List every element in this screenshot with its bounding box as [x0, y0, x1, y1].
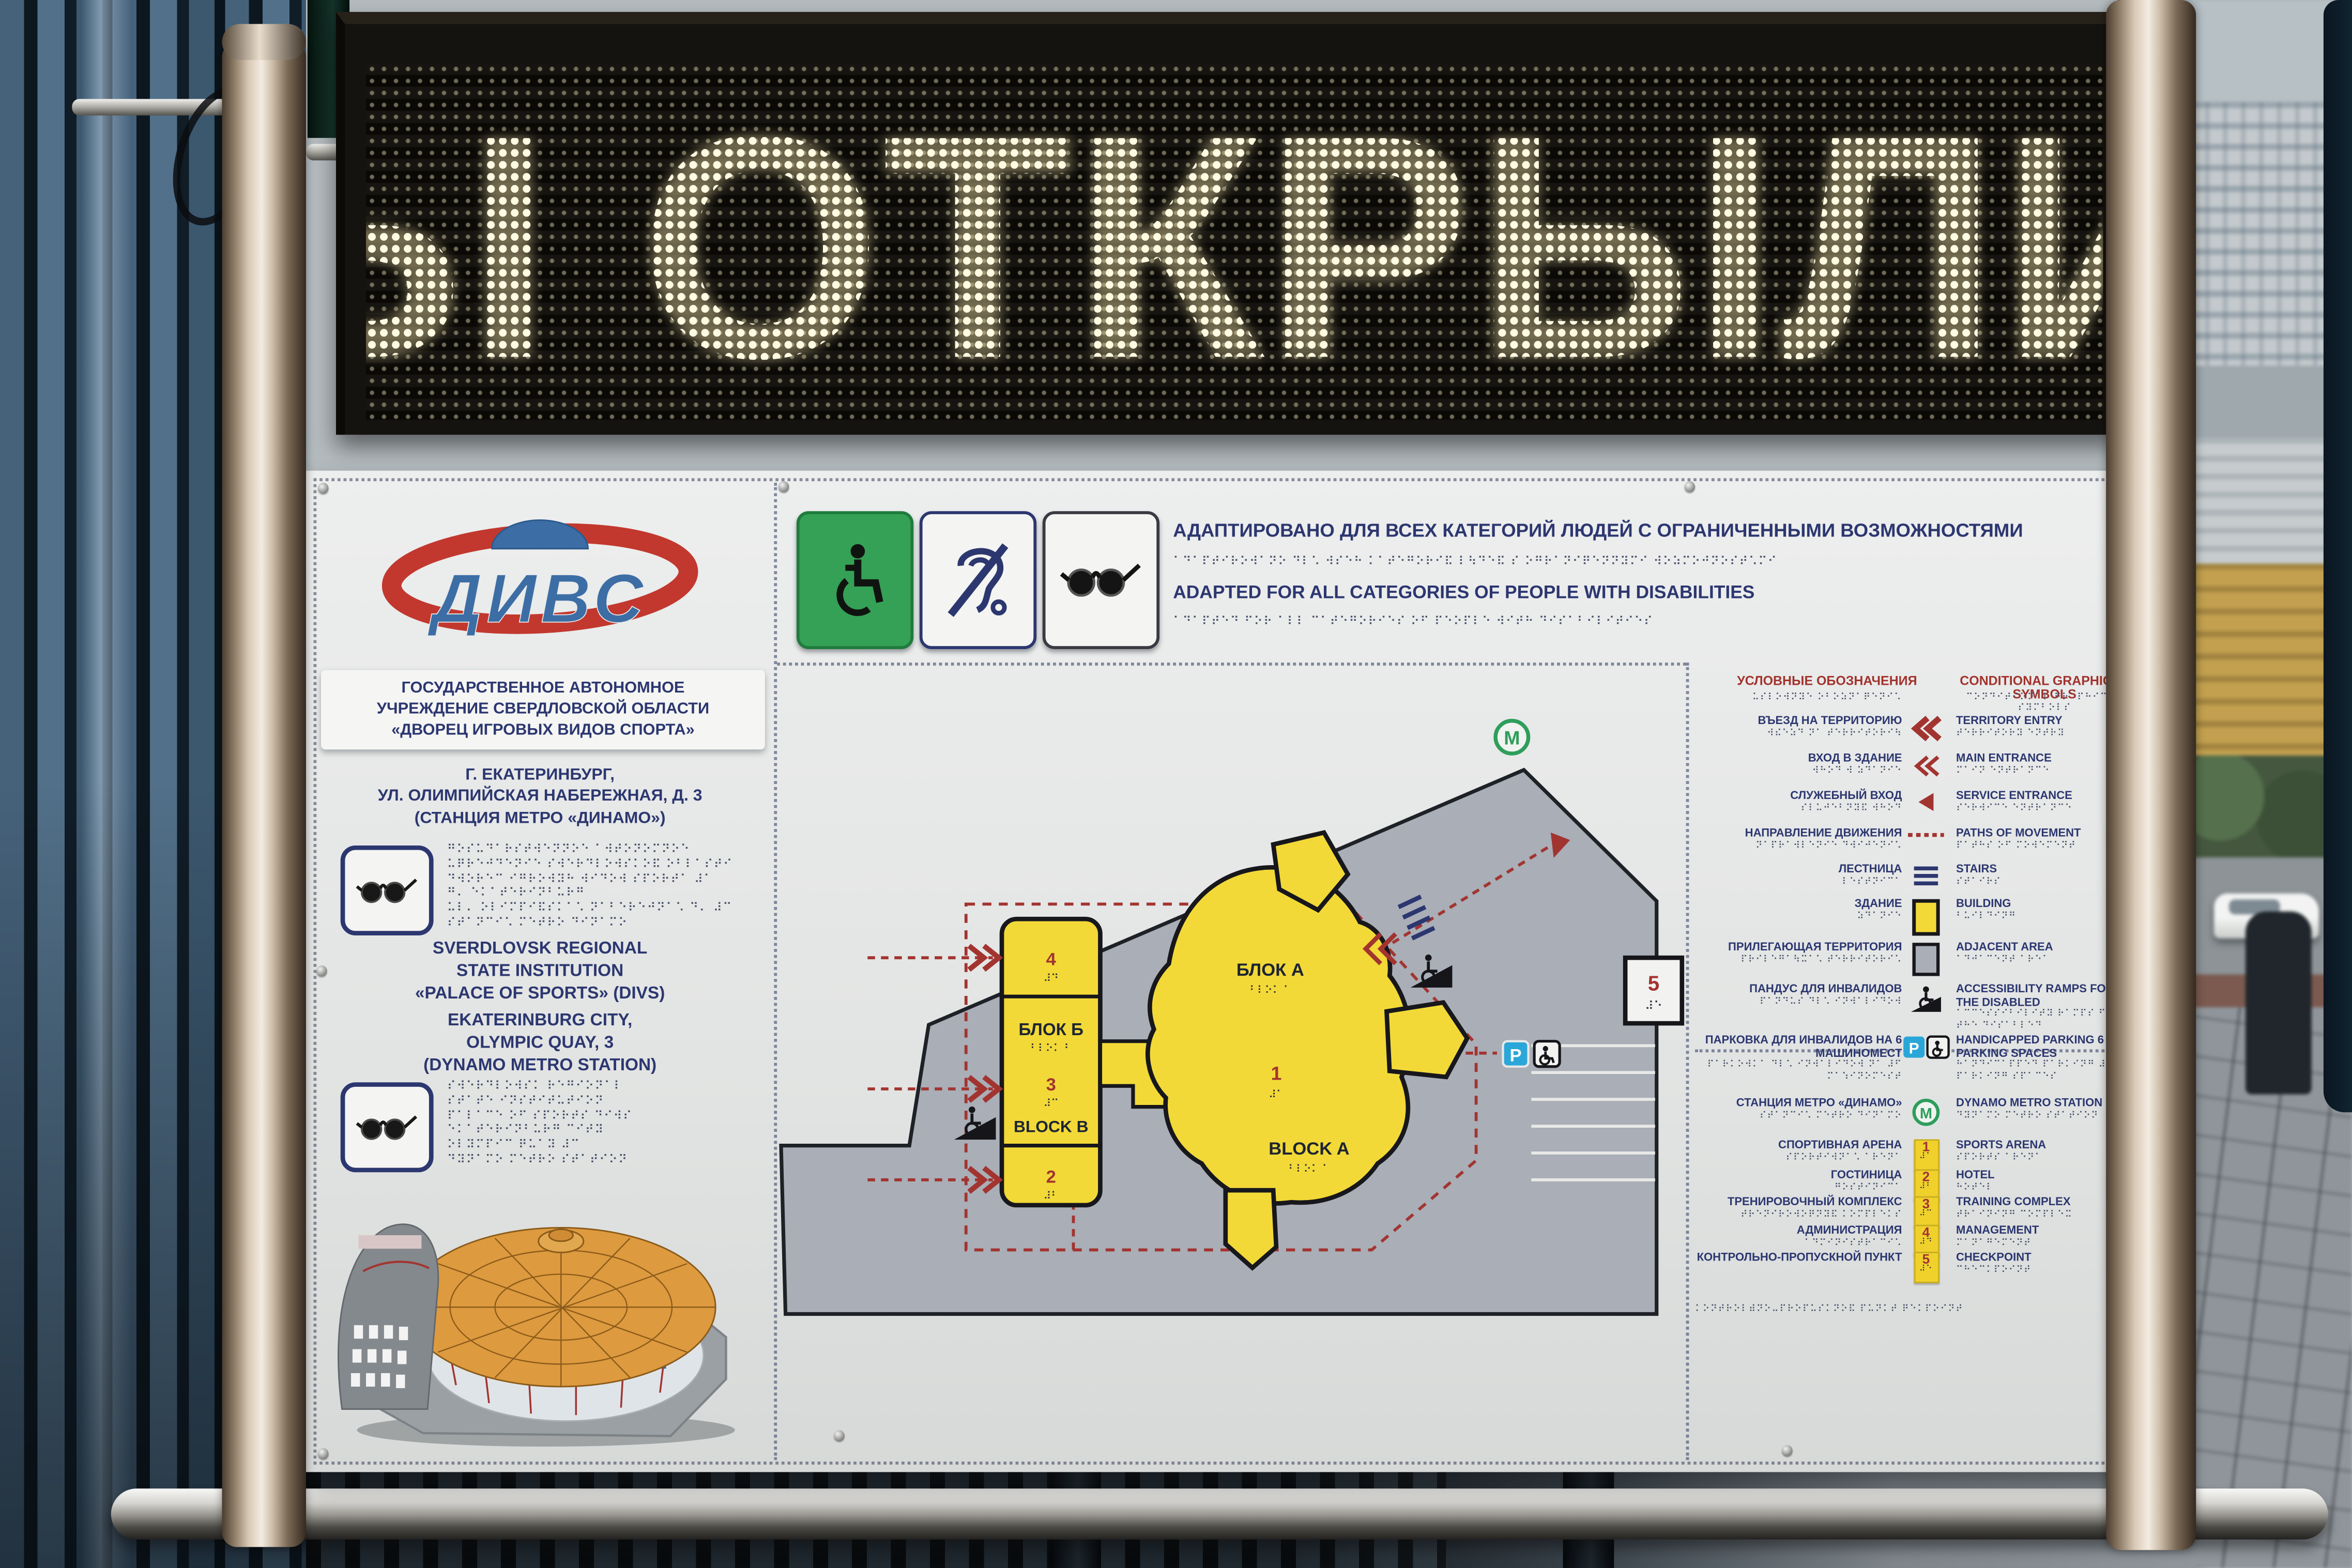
legend-ru: ЛЕСТНИЦА⠇⠑⠎⠞⠝⠊⠉⠁	[1677, 864, 1902, 888]
address-ru-line: УЛ. ОЛИМПИЙСКАЯ НАБЕРЕЖНАЯ, Д. 3	[321, 786, 759, 807]
divs-logo: ДИВС	[378, 504, 705, 648]
facility-number: 1	[1922, 1141, 1930, 1154]
braille: ⠼⠑	[1919, 1267, 1933, 1275]
address-en-line: (DYNAMO METRO STATION)	[321, 1055, 759, 1078]
screw	[778, 481, 789, 491]
legend-title-braille-ru: ⠥⠎⠇⠕⠺⠝⠽⠑ ⠕⠃⠕⠵⠝⠁⠟⠑⠝⠊⠡	[1716, 693, 1938, 703]
facility-en-label: TRAINING COMPLEX	[1956, 1195, 2071, 1208]
legend-ru-label: ПАРКОВКА ДЛЯ ИНВАЛИДОВ НА 6 МАШИНОМЕСТ	[1705, 1033, 1902, 1059]
braille: ⠃⠇⠕⠅ ⠁	[1288, 1163, 1330, 1175]
header-braille-ru: ⠁⠙⠁⠏⠞⠊⠗⠕⠺⠁⠝⠕ ⠙⠇⠡ ⠺⠎⠑⠓ ⠅⠁⠞⠑⠛⠕⠗⠊⠯ ⠇⠳⠙⠑⠯ ⠎ …	[1173, 555, 2145, 568]
stand-pole-right	[2106, 0, 2196, 1550]
legend-en-label: TERRITORY ENTRY	[1956, 714, 2063, 727]
facility-row-checkpoint: КОНТРОЛЬНО-ПРОПУСКНОЙ ПУНКТ 5⠼⠑ CHECKPOI…	[1686, 1252, 2136, 1297]
braille-line: ⠎⠞⠁⠞⠑ ⠊⠝⠎⠞⠊⠞⠥⠞⠊⠕⠝	[447, 1094, 762, 1109]
braille-line: ⠙⠽⠝⠁⠍⠕ ⠍⠑⠞⠗⠕ ⠎⠞⠁⠞⠊⠕⠝	[447, 1152, 762, 1167]
block-b-sec4-number: 4	[1046, 950, 1057, 970]
address-en-line: OLYMPIC QUAY, 3	[321, 1033, 759, 1055]
braille-line: ⠛⠕⠎⠥⠙⠁⠗⠎⠞⠺⠑⠝⠝⠕⠑ ⠁⠺⠞⠕⠝⠕⠍⠝⠕⠑	[447, 842, 762, 857]
legend-title-ru: УСЛОВНЫЕ ОБОЗНАЧЕНИЯ	[1716, 674, 1938, 688]
scene: Ы ОТКРЫЛИ Ы ОТКРЫЛИ ДИВС	[0, 0, 2352, 1568]
facility-ru-label: ГОСТИНИЦА	[1831, 1168, 1902, 1181]
legend-row-building: ЗДАНИЕ⠵⠙⠁⠝⠊⠑ BUILDING⠃⠥⠊⠇⠙⠊⠝⠛	[1686, 898, 2136, 943]
legend-ru: ЗДАНИЕ⠵⠙⠁⠝⠊⠑	[1677, 898, 1902, 922]
block-b-label-ru: БЛОК Б	[1019, 1020, 1083, 1039]
legend-row-parking: ПАРКОВКА ДЛЯ ИНВАЛИДОВ НА 6 МАШИНОМЕСТ⠏⠁…	[1686, 1034, 2136, 1079]
legend-en-label: HANDICAPPED PARKING 6 PARKING SPACES	[1956, 1033, 2104, 1059]
building-symbol	[1902, 898, 1950, 936]
legend-ru: СЛУЖЕБНЫЙ ВХОД⠎⠇⠥⠚⠑⠃⠝⠽⠯ ⠺⠓⠕⠙	[1677, 790, 1902, 814]
braille: ⠼⠉	[1043, 1097, 1059, 1110]
braille: ⠵⠙⠁⠝⠊⠑	[1677, 911, 1902, 923]
address-ru-line: (СТАНЦИЯ МЕТРО «ДИНАМО»)	[321, 807, 759, 828]
braille: ⠎⠏⠕⠗⠞⠊⠺⠝⠁⠡ ⠁⠗⠑⠝⠁	[1677, 1152, 1902, 1164]
braille: ⠼⠙	[1919, 1240, 1933, 1248]
braille: ⠼⠃	[1043, 1189, 1059, 1202]
legend-ru-label: СЛУЖЕБНЫЙ ВХОД	[1790, 789, 1902, 802]
facility-ru: КОНТРОЛЬНО-ПРОПУСКНОЙ ПУНКТ	[1677, 1252, 1902, 1265]
institution-plaque-ru: ГОСУДАРСТВЕННОЕ АВТОНОМНОЕ УЧРЕЖДЕНИЕ СВ…	[321, 670, 765, 750]
ramp-symbol	[1902, 983, 1950, 1017]
information-panel: ДИВС ГОСУДАРСТВЕННОЕ АВТОНОМНОЕ УЧРЕЖДЕН…	[306, 471, 2142, 1472]
braille: ⠎⠇⠥⠚⠑⠃⠝⠽⠯ ⠺⠓⠕⠙	[1677, 803, 1902, 814]
braille-line: ⠏⠁⠇⠁⠉⠑ ⠕⠋ ⠎⠏⠕⠗⠞⠎ ⠙⠊⠺⠎	[447, 1109, 762, 1123]
braille: ⠃⠇⠕⠅ ⠃	[1030, 1042, 1072, 1054]
braille-glasses-icon	[341, 846, 434, 935]
screw	[318, 483, 328, 493]
facility-ru: ТРЕНИРОВОЧНЫЙ КОМПЛЕКС⠞⠗⠑⠝⠊⠗⠕⠺⠕⠟⠝⠽⠯ ⠅⠕⠍⠏…	[1677, 1196, 1902, 1221]
led-text-layer: Ы ОТКРЫЛИ Ы ОТКРЫЛИ	[366, 63, 2103, 420]
braille: ⠏⠁⠝⠙⠥⠎ ⠙⠇⠡ ⠊⠝⠺⠁⠇⠊⠙⠕⠺	[1677, 996, 1902, 1008]
legend-en-label: BUILDING	[1956, 897, 2011, 910]
facility-en-label: MANAGEMENT	[1956, 1223, 2039, 1237]
facility-en-label: CHECKPOINT	[1956, 1250, 2032, 1264]
led-dot-matrix: Ы ОТКРЫЛИ Ы ОТКРЫЛИ	[366, 63, 2103, 420]
handicapped-parking-sign	[1534, 1041, 1560, 1067]
org-ru-line: УЧРЕЖДЕНИЕ СВЕРДЛОВСКОЙ ОБЛАСТИ	[324, 700, 762, 720]
stand-pole-left	[222, 42, 306, 1547]
facility-number: 2	[1922, 1171, 1930, 1184]
braille: ⠼⠉	[1919, 1211, 1933, 1220]
legend-en-label: MAIN ENTRANCE	[1956, 751, 2052, 764]
led-text: Ы ОТКРЫЛИ	[366, 69, 2103, 420]
stairs-symbol	[1902, 864, 1950, 890]
block-b-label-en: BLOCK B	[1014, 1117, 1089, 1136]
address-ru-line: Г. ЕКАТЕРИНБУРГ,	[321, 764, 759, 786]
braille-glasses-icon	[341, 1082, 434, 1172]
braille: ⠞⠗⠑⠝⠊⠗⠕⠺⠕⠟⠝⠽⠯ ⠅⠕⠍⠏⠇⠑⠅⠎	[1677, 1209, 1902, 1221]
facility-ru-label: ТРЕНИРОВОЧНЫЙ КОМПЛЕКС	[1728, 1195, 1902, 1208]
braille: ⠺⠮⠑⠵⠙ ⠝⠁ ⠞⠑⠗⠗⠊⠞⠕⠗⠊⠳	[1677, 728, 1902, 740]
facility-number: 4	[1922, 1226, 1930, 1240]
screw	[1782, 1445, 1792, 1455]
braille: ⠺⠓⠕⠙ ⠺ ⠵⠙⠁⠝⠊⠑	[1677, 765, 1902, 777]
braille-line: ⠙⠺⠕⠗⠑⠉ ⠊⠛⠗⠕⠺⠽⠓ ⠺⠊⠙⠕⠺ ⠎⠏⠕⠗⠞⠁ ⠼⠁	[447, 872, 762, 886]
braille: ⠼⠁	[1919, 1154, 1933, 1162]
parking-symbols: P	[1902, 1034, 1950, 1061]
facility-en-label: HOTEL	[1956, 1168, 1995, 1181]
legend-ru-label: ЛЕСТНИЦА	[1839, 862, 1902, 875]
org-ru-line: ГОСУДАРСТВЕННОЕ АВТОНОМНОЕ	[324, 679, 762, 700]
screw	[1685, 481, 1695, 491]
braille-line: ⠑⠅⠁⠞⠑⠗⠊⠝⠃⠥⠗⠛ ⠉⠊⠞⠽	[447, 1123, 762, 1137]
block-a-label-en: BLOCK A	[1269, 1139, 1349, 1159]
braille-paragraph-en: ⠎⠺⠑⠗⠙⠇⠕⠺⠎⠅ ⠗⠑⠛⠊⠕⠝⠁⠇ ⠎⠞⠁⠞⠑ ⠊⠝⠎⠞⠊⠞⠥⠞⠊⠕⠝ ⠏⠁…	[447, 1079, 762, 1167]
facility-ru: ГОСТИНИЦА⠛⠕⠎⠞⠊⠝⠊⠉⠁	[1677, 1169, 1902, 1193]
braille: ⠛⠕⠎⠞⠊⠝⠊⠉⠁	[1677, 1182, 1902, 1194]
legend-ru-label: ЗДАНИЕ	[1855, 897, 1902, 910]
main-entrance-symbol	[1902, 752, 1950, 779]
braille: ⠇⠑⠎⠞⠝⠊⠉⠁	[1677, 876, 1902, 888]
legend-en-label: SERVICE ENTRANCE	[1956, 789, 2072, 802]
legend-ru: ПАНДУС ДЛЯ ИНВАЛИДОВ⠏⠁⠝⠙⠥⠎ ⠙⠇⠡ ⠊⠝⠺⠁⠇⠊⠙⠕⠺	[1677, 983, 1902, 1008]
address-ru: Г. ЕКАТЕРИНБУРГ, УЛ. ОЛИМПИЙСКАЯ НАБЕРЕЖ…	[321, 764, 759, 828]
glasses-icon	[354, 1111, 420, 1144]
block-a-label-ru: БЛОК А	[1236, 960, 1304, 980]
facility-number-tile: 3⠼⠉	[1902, 1196, 1950, 1228]
braille-line: ⠕⠇⠽⠍⠏⠊⠉ ⠟⠥⠁⠽ ⠼⠉	[447, 1138, 762, 1152]
facility-number-tile: 1⠼⠁	[1902, 1139, 1950, 1171]
legend-ru-label: НАПРАВЛЕНИЕ ДВИЖЕНИЯ	[1745, 826, 1902, 839]
block-a-number: 1	[1271, 1063, 1282, 1084]
braille-line: ⠥⠇⠄ ⠕⠇⠊⠍⠏⠊⠯⠎⠅⠁⠡ ⠝⠁⠃⠑⠗⠑⠚⠝⠁⠡ ⠙⠄ ⠼⠉	[447, 901, 762, 915]
facility-number: 3	[1922, 1198, 1930, 1211]
legend-ru-label: ВЪЕЗД НА ТЕРРИТОРИЮ	[1758, 714, 1902, 727]
address-en-line: EKATERINBURG CITY,	[321, 1010, 759, 1033]
legend-row-ramps: ПАНДУС ДЛЯ ИНВАЛИДОВ⠏⠁⠝⠙⠥⠎ ⠙⠇⠡ ⠊⠝⠺⠁⠇⠊⠙⠕⠺…	[1686, 983, 2136, 1028]
braille: ⠼⠃	[1919, 1184, 1933, 1192]
braille-line: ⠎⠺⠑⠗⠙⠇⠕⠺⠎⠅ ⠗⠑⠛⠊⠕⠝⠁⠇	[447, 1079, 762, 1094]
led-ticker-board: Ы ОТКРЫЛИ Ы ОТКРЫЛИ	[336, 12, 2121, 435]
checkpoint-number: 5	[1648, 972, 1659, 995]
photo-of-information-stand: Ы ОТКРЫЛИ Ы ОТКРЫЛИ ДИВС	[0, 0, 2352, 1568]
deaf-ear-icon	[943, 535, 1012, 625]
legend-ru: ПРИЛЕГАЮЩАЯ ТЕРРИТОРИЯ⠏⠗⠊⠇⠑⠛⠁⠳⠭⠁⠡ ⠞⠑⠗⠗⠊⠞…	[1677, 942, 1902, 966]
adjacent-area-symbol	[1902, 942, 1950, 978]
facility-number: 5	[1922, 1253, 1930, 1267]
pedestrian-silhouette	[2246, 912, 2312, 1095]
legend-ru: НАПРАВЛЕНИЕ ДВИЖЕНИЯ⠝⠁⠏⠗⠁⠺⠇⠑⠝⠊⠑ ⠙⠺⠊⠚⠑⠝⠊⠡	[1677, 827, 1902, 852]
wheelchair-access-tile	[797, 511, 913, 649]
facility-ru: СПОРТИВНАЯ АРЕНА⠎⠏⠕⠗⠞⠊⠺⠝⠁⠡ ⠁⠗⠑⠝⠁	[1677, 1139, 1902, 1163]
facility-ru-label: КОНТРОЛЬНО-ПРОПУСКНОЙ ПУНКТ	[1697, 1250, 1902, 1264]
org-en-line: STATE INSTITUTION	[321, 961, 759, 983]
braille-paragraph-ru: ⠛⠕⠎⠥⠙⠁⠗⠎⠞⠺⠑⠝⠝⠕⠑ ⠁⠺⠞⠕⠝⠕⠍⠝⠕⠑ ⠥⠟⠗⠑⠚⠙⠑⠝⠊⠑ ⠎⠺…	[447, 842, 762, 930]
legend-ru: ВЪЕЗД НА ТЕРРИТОРИЮ⠺⠮⠑⠵⠙ ⠝⠁ ⠞⠑⠗⠗⠊⠞⠕⠗⠊⠳	[1677, 715, 1902, 740]
arena-3d-rendering	[318, 1181, 762, 1451]
dark-structure-edge	[2324, 0, 2352, 1112]
org-ru-line: «ДВОРЕЦ ИГРОВЫХ ВИДОВ СПОРТА»	[324, 720, 762, 741]
braille: ⠃⠇⠕⠅ ⠁	[1249, 983, 1291, 996]
facility-en-label: SPORTS ARENA	[1956, 1138, 2046, 1151]
braille: ⠏⠁⠗⠅⠕⠺⠅⠁ ⠙⠇⠡ ⠊⠝⠺⠁⠇⠊⠙⠕⠺ ⠝⠁ ⠼⠋ ⠍⠁⠱⠊⠝⠕⠍⠑⠎⠞	[1677, 1060, 1902, 1084]
braille: ⠏⠗⠊⠇⠑⠛⠁⠳⠭⠁⠡ ⠞⠑⠗⠗⠊⠞⠕⠗⠊⠡	[1677, 954, 1902, 966]
hearing-impaired-tile	[920, 511, 1036, 649]
divs-logo-text: ДИВС	[427, 560, 648, 637]
braille: ⠝⠁⠏⠗⠁⠺⠇⠑⠝⠊⠑ ⠙⠺⠊⠚⠑⠝⠊⠡	[1677, 840, 1902, 852]
org-en-line: «PALACE OF SPORTS» (DIVS)	[321, 983, 759, 1005]
blind-glasses-tile	[1043, 511, 1159, 649]
territory-entry-symbol	[1902, 715, 1950, 742]
facility-ru-label: СПОРТИВНАЯ АРЕНА	[1778, 1138, 1902, 1151]
service-entrance-symbol	[1902, 790, 1950, 814]
braille-line: ⠎⠞⠁⠝⠉⠊⠡ ⠍⠑⠞⠗⠕ ⠙⠊⠝⠁⠍⠕	[447, 916, 762, 930]
braille: ⠼⠁	[1269, 1088, 1284, 1100]
facility-number-tile: 5⠼⠑	[1902, 1252, 1950, 1283]
braille: ⠁⠙⠍⠊⠝⠊⠎⠞⠗⠁⠉⠊⠡	[1677, 1237, 1902, 1249]
legend-en-label: STAIRS	[1956, 862, 1997, 875]
dark-glasses-icon	[1059, 559, 1143, 601]
legend-en-label: ACCESSIBILITY RAMPS FOR THE DISABLED	[1956, 982, 2114, 1008]
braille: ⠼⠑	[1645, 1000, 1662, 1013]
header-ru: АДАПТИРОВАНО ДЛЯ ВСЕХ КАТЕГОРИЙ ЛЮДЕЙ С …	[1173, 520, 2145, 542]
legend-ru: ВХОД В ЗДАНИЕ⠺⠓⠕⠙ ⠺ ⠵⠙⠁⠝⠊⠑	[1677, 752, 1902, 777]
block-b-sec3-number: 3	[1046, 1075, 1056, 1095]
wheelchair-icon	[822, 536, 888, 623]
legend-row-adjacent: ПРИЛЕГАЮЩАЯ ТЕРРИТОРИЯ⠏⠗⠊⠇⠑⠛⠁⠳⠭⠁⠡ ⠞⠑⠗⠗⠊⠞…	[1686, 942, 2136, 987]
parking-letter: P	[1510, 1046, 1522, 1066]
chrome-crossbar	[111, 1488, 2328, 1540]
braille: ⠼⠙	[1043, 972, 1059, 984]
block-b-sec2-number: 2	[1046, 1167, 1056, 1187]
parking-letter: P	[1909, 1040, 1919, 1057]
header-en: ADAPTED FOR ALL CATEGORIES OF PEOPLE WIT…	[1173, 581, 2145, 603]
address-en: EKATERINBURG CITY, OLYMPIC QUAY, 3 (DYNA…	[321, 1010, 759, 1078]
institution-en: SVERDLOVSK REGIONAL STATE INSTITUTION «P…	[321, 939, 759, 1006]
legend-ru-label: ВХОД В ЗДАНИЕ	[1808, 751, 1902, 764]
braille-line: ⠛⠄ ⠑⠅⠁⠞⠑⠗⠊⠝⠃⠥⠗⠛	[447, 886, 762, 901]
facility-ru: АДМИНИСТРАЦИЯ⠁⠙⠍⠊⠝⠊⠎⠞⠗⠁⠉⠊⠡	[1677, 1225, 1902, 1249]
facilities-footer-braille: ⠅⠕⠝⠞⠗⠕⠇⠾⠝⠕⠤⠏⠗⠕⠏⠥⠎⠅⠝⠕⠯ ⠏⠥⠝⠅⠞ ⠟⠑⠅⠏⠕⠊⠝⠞	[1695, 1304, 2133, 1315]
paths-symbol	[1902, 827, 1950, 842]
site-map: 4 ⠼⠙ БЛОК Б ⠃⠇⠕⠅ ⠃ 3 ⠼⠉ BLOCK B 2 ⠼⠃ БЛО…	[777, 666, 1686, 1460]
facility-ru-label: АДМИНИСТРАЦИЯ	[1797, 1223, 1902, 1237]
org-en-line: SVERDLOVSK REGIONAL	[321, 939, 759, 961]
glasses-icon	[354, 874, 420, 907]
legend-ru-label: ПРИЛЕГАЮЩАЯ ТЕРРИТОРИЯ	[1728, 940, 1902, 954]
braille-line: ⠥⠟⠗⠑⠚⠙⠑⠝⠊⠑ ⠎⠺⠑⠗⠙⠇⠕⠺⠎⠅⠕⠯ ⠕⠃⠇⠁⠎⠞⠊	[447, 857, 762, 871]
metro-letter: M	[1504, 727, 1520, 749]
header-braille-en: ⠁⠙⠁⠏⠞⠑⠙ ⠋⠕⠗ ⠁⠇⠇ ⠉⠁⠞⠑⠛⠕⠗⠊⠑⠎ ⠕⠋ ⠏⠑⠕⠏⠇⠑ ⠺⠊⠞…	[1173, 614, 2145, 628]
legend-ru: ПАРКОВКА ДЛЯ ИНВАЛИДОВ НА 6 МАШИНОМЕСТ⠏⠁…	[1677, 1034, 1902, 1083]
legend-ru-label: ПАНДУС ДЛЯ ИНВАЛИДОВ	[1749, 982, 1902, 995]
legend-en-label: PATHS OF MOVEMENT	[1956, 826, 2081, 839]
legend-en-label: ADJACENT AREA	[1956, 940, 2053, 954]
